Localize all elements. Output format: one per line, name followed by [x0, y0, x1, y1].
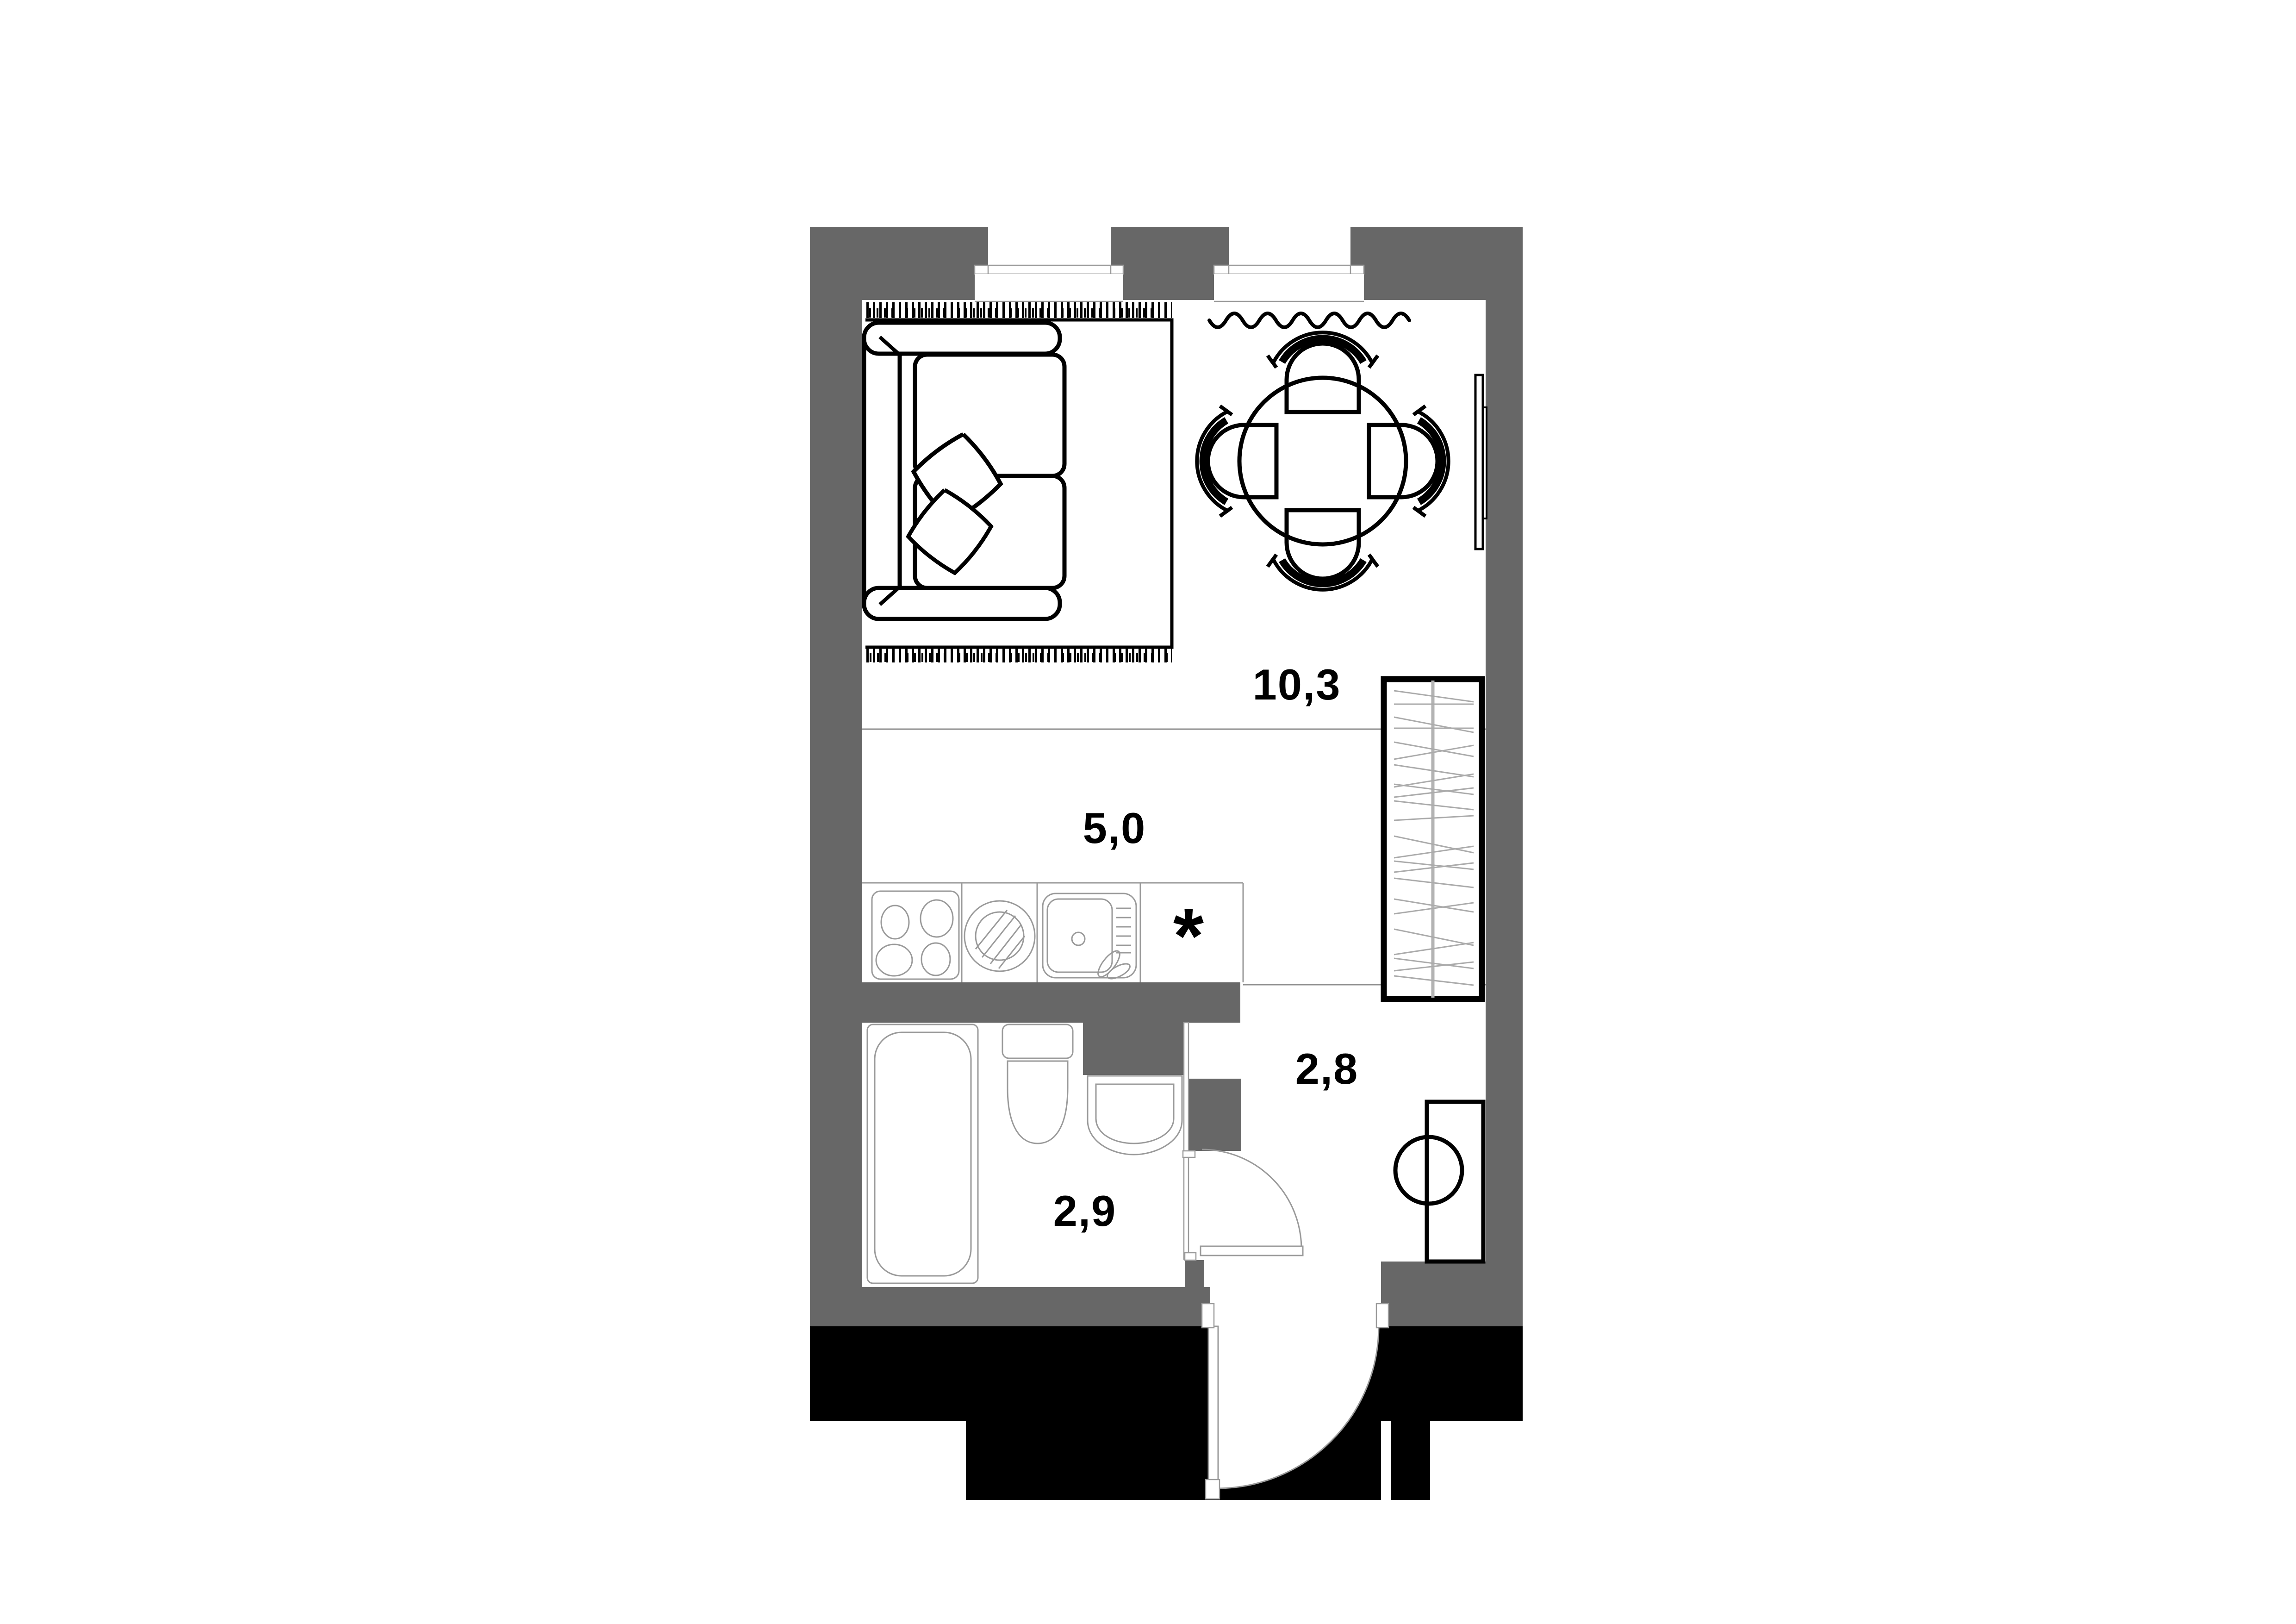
- wall-hallway-stub: [1188, 1079, 1241, 1151]
- window-left: [975, 221, 1123, 303]
- wall-bottom-left: [810, 1287, 1210, 1326]
- bathroom-area-label: 2,9: [1053, 1187, 1117, 1235]
- washbasin-icon: [1088, 1076, 1182, 1155]
- curtain-wave-icon: [1209, 313, 1409, 327]
- window-left-sill: [975, 274, 1123, 303]
- wall-bath-door-jamb: [1185, 1260, 1204, 1287]
- bathtub-icon: [867, 1024, 978, 1283]
- window-right-frame: [1214, 265, 1364, 274]
- chair-top-icon: [1268, 332, 1378, 412]
- chair-bottom-icon: [1268, 510, 1378, 590]
- window-left-recess: [988, 221, 1111, 265]
- floor-plan: 10,3 5,0 2,8 2,9 *: [0, 0, 2296, 1624]
- wall-left: [810, 227, 862, 1326]
- tv-icon: [1475, 375, 1487, 549]
- sofa-back: [864, 323, 900, 619]
- bath-door-leaf: [1201, 1246, 1303, 1255]
- chair-right-icon: [1369, 406, 1449, 516]
- floor-plan-page: 10,3 5,0 2,8 2,9 *: [0, 0, 2296, 1624]
- cooktop-icon: [872, 891, 959, 979]
- water-heater-icon: [1395, 1102, 1483, 1262]
- bath-door-frame-notch: [1183, 1151, 1195, 1157]
- kitchen-area-label: 5,0: [1083, 804, 1146, 852]
- entry-door-leaf: [1208, 1326, 1218, 1489]
- wardrobe-icon: [1384, 679, 1482, 999]
- kitchen-sink-icon: [1043, 893, 1136, 981]
- entry-door-hinge-notch: [1202, 1304, 1214, 1328]
- footing-left-deep: [966, 1326, 1210, 1500]
- wall-kitchen-bathroom: [862, 982, 1240, 1023]
- footing-right-deep: [1391, 1326, 1430, 1500]
- chair-left-icon: [1197, 406, 1276, 516]
- sofa-icon: [864, 323, 1064, 619]
- bathroom-partition-wall: [1184, 1023, 1188, 1259]
- wall-right: [1486, 227, 1523, 1326]
- wall-basin-stub: [1083, 1023, 1188, 1075]
- bath-door-swing-arc: [1202, 1149, 1301, 1249]
- kitchen-note-marker: *: [1173, 892, 1204, 980]
- toilet-icon: [1002, 1024, 1073, 1143]
- window-right-sill: [1214, 274, 1364, 303]
- entry-door-latch-notch: [1206, 1480, 1220, 1499]
- footing: [810, 1326, 1523, 1500]
- washing-machine-icon: [964, 901, 1035, 971]
- living-area-label: 10,3: [1253, 660, 1341, 709]
- wall-bottom-right: [1381, 1262, 1523, 1326]
- window-right: [1214, 221, 1364, 303]
- hallway-area-label: 2,8: [1295, 1044, 1359, 1093]
- wall-top: [810, 227, 1523, 300]
- dining-set: [1197, 332, 1448, 589]
- entry-door-frame-notch: [1376, 1304, 1388, 1328]
- window-right-recess: [1229, 221, 1350, 265]
- window-left-frame: [975, 265, 1123, 274]
- sink-rack-lines: [1116, 908, 1131, 953]
- bath-door-frame-notch: [1185, 1253, 1196, 1260]
